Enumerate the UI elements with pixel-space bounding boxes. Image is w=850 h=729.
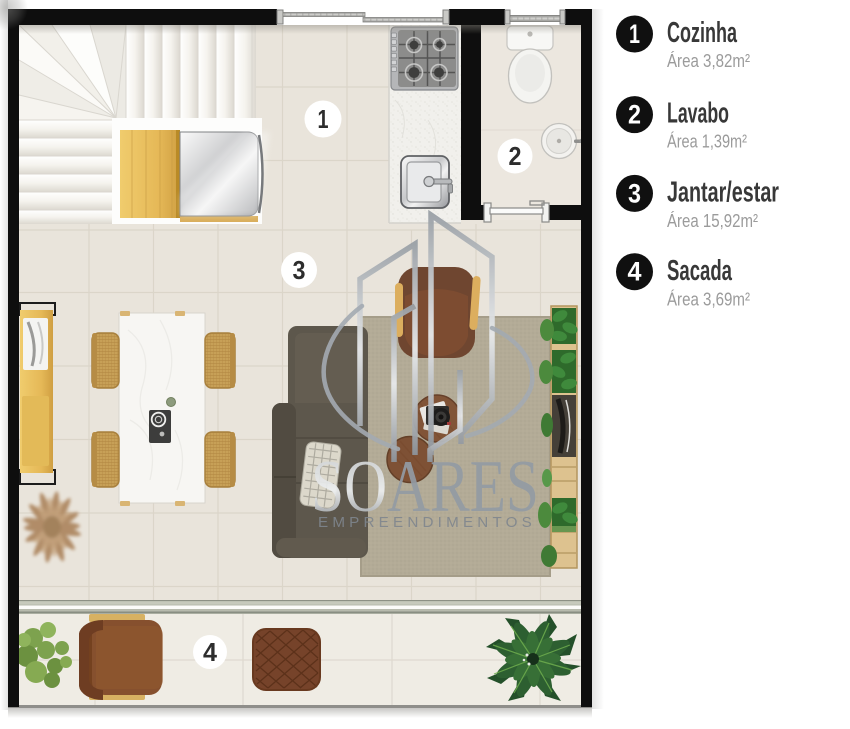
svg-text:EMPREENDIMENTOS: EMPREENDIMENTOS bbox=[318, 515, 536, 531]
svg-text:Área 1,39m²: Área 1,39m² bbox=[667, 131, 747, 152]
svg-text:4: 4 bbox=[628, 257, 642, 287]
svg-text:Área 15,92m²: Área 15,92m² bbox=[667, 210, 758, 231]
svg-text:4: 4 bbox=[203, 637, 218, 667]
svg-text:Área 3,69m²: Área 3,69m² bbox=[667, 289, 750, 310]
svg-text:Cozinha: Cozinha bbox=[667, 17, 738, 49]
svg-text:1: 1 bbox=[318, 104, 329, 134]
svg-text:Jantar/estar: Jantar/estar bbox=[667, 176, 779, 208]
svg-text:1: 1 bbox=[629, 19, 640, 49]
svg-text:Área 3,82m²: Área 3,82m² bbox=[667, 50, 750, 71]
svg-text:2: 2 bbox=[509, 141, 522, 171]
svg-text:2: 2 bbox=[628, 100, 641, 130]
svg-text:3: 3 bbox=[628, 178, 641, 208]
svg-text:Lavabo: Lavabo bbox=[667, 98, 729, 130]
svg-text:3: 3 bbox=[293, 255, 306, 285]
svg-text:Sacada: Sacada bbox=[667, 255, 733, 287]
